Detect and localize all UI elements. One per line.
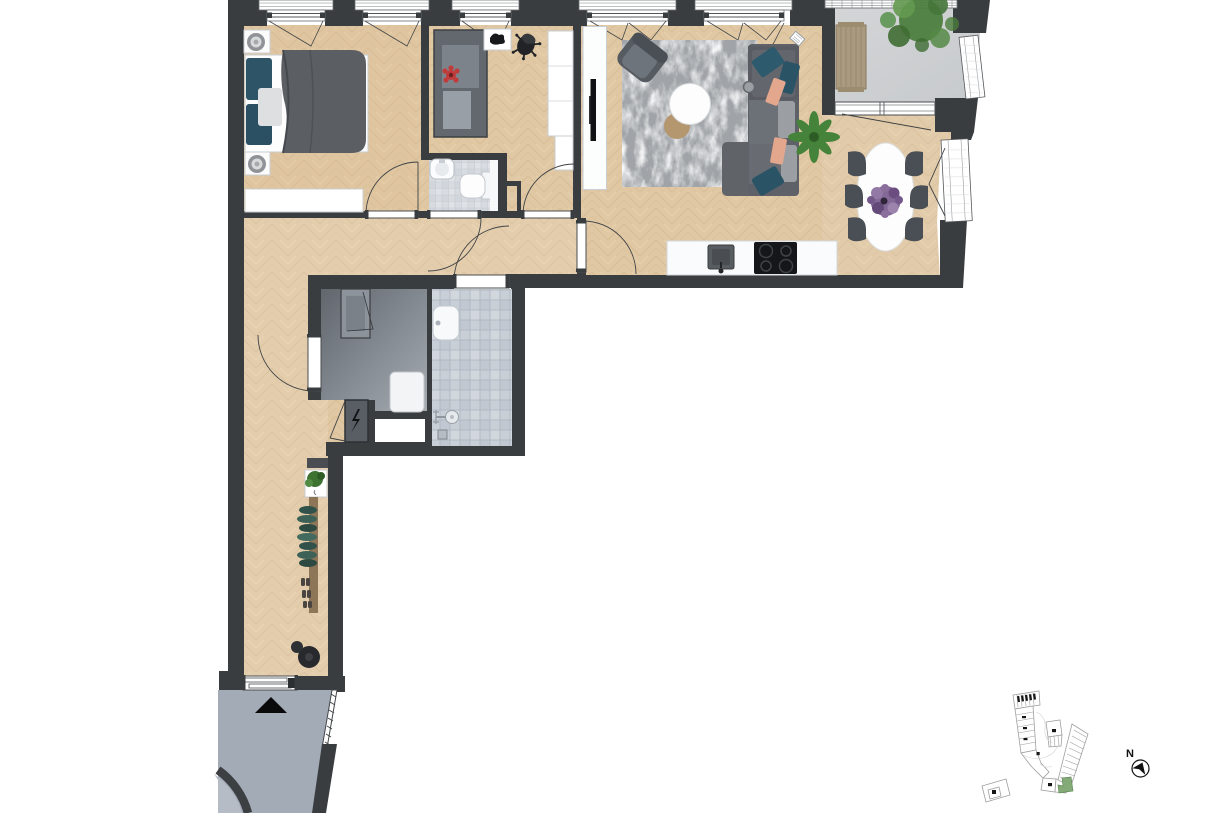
svg-text:N: N <box>1126 748 1134 760</box>
